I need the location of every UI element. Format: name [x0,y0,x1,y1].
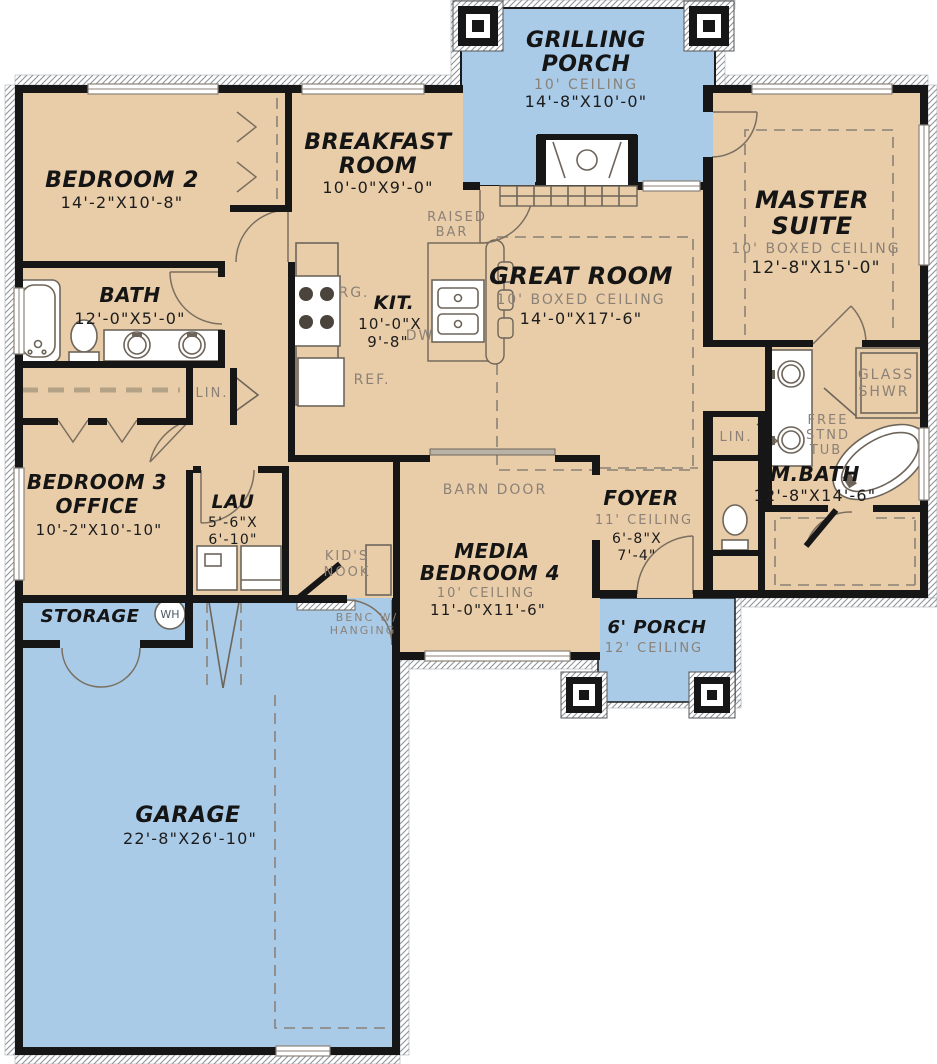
washer [197,546,237,590]
raised-bar-label: RAISED [427,210,487,225]
breakfast-label: ROOM [339,154,417,179]
media-bedroom-ceiling: 10' CEILING [437,586,535,601]
grilling-porch-ceiling: 10' CEILING [534,77,638,93]
garage-dims: 22'-8"X26'-10" [123,829,257,848]
bedroom2-label: BEDROOM 2 [45,168,199,193]
laundry-dims: 6'-10" [208,532,257,548]
window [919,125,929,265]
kitchen-dims: 9'-8" [367,333,409,351]
glass-shower-label: GLASS [858,367,914,383]
hall-linen-label: LIN. [196,386,229,401]
master-bath-dims: 12'-8"X14'-6" [754,486,877,505]
refrigerator [298,358,344,406]
grilling-porch-label: PORCH [542,52,631,77]
column [684,1,734,51]
great-room-label: GREAT ROOM [489,262,673,290]
barn-door-label: BARN DOOR [443,482,547,498]
porch-door [643,181,700,191]
breakfast-dims: 10'-0"X9'-0" [322,178,433,197]
master-bath-label: M.BATH [770,462,860,486]
column [689,672,735,718]
bedroom3-label: OFFICE [55,494,138,518]
dryer [241,546,281,590]
bedroom3-dims: 10'-2"X10'-10" [36,521,163,539]
media-bedroom-label: BEDROOM 4 [420,561,560,585]
dishwasher-label: DW [406,328,435,344]
great-room-dims: 14'-0"X17'-6" [520,309,643,328]
freestanding-tub-label: STND [806,428,850,443]
media-bedroom-dims: 11'-0"X11'-6" [430,601,546,619]
freestanding-tub-label: TUB [809,443,842,458]
kids-nook-label: NOOK [324,565,371,580]
bath-label: BATH [99,283,160,307]
barn-door-slider [430,449,555,455]
bath-dims: 12'-0"X5'-0" [74,309,185,328]
breakfast-label: BREAKFAST [304,130,453,155]
bar-stool [498,318,513,338]
window [425,651,570,661]
glass-shower-label: SHWR [859,384,910,400]
water-heater-label: WH [160,608,179,621]
bench-label: HANGING [330,624,397,637]
raised-bar-label: BAR [436,225,469,240]
bedroom3-label: BEDROOM 3 [27,470,167,494]
kids-nook-label: KID'S [325,549,369,564]
foyer-dims: 6'-8"X [612,531,662,547]
bedroom2-dims: 14'-2"X10'-8" [61,193,184,212]
window [919,428,929,500]
great-room-ceiling: 10' BOXED CEILING [496,292,665,308]
grilling-porch-dims: 14'-8"X10'-0" [525,92,648,111]
refrigerator-label: REF. [354,372,391,388]
media-bedroom-label: MEDIA [454,539,530,563]
laundry-label: LAU [212,491,255,513]
window [302,84,424,94]
column [453,1,503,51]
range-label: RG. [338,285,369,301]
master-toilet [723,505,747,535]
master-linen-label: LIN. [720,430,753,445]
garage-label: GARAGE [135,803,240,828]
laundry-dims: 5'-6"X [208,515,258,531]
window [14,288,24,354]
bench-label: BENC W/ [336,611,399,624]
master-suite-ceiling: 10' BOXED CEILING [731,241,900,257]
front-porch-label: 6' PORCH [608,617,707,638]
kitchen-label: KIT. [374,292,415,314]
grilling-porch-label: GRILLING [526,28,646,53]
window [752,84,892,94]
column [561,672,607,718]
master-suite-label: SUITE [772,212,853,240]
storage-label: STORAGE [41,606,140,627]
window [14,468,24,580]
foyer-ceiling: 11' CEILING [595,513,693,528]
floor-plan-drawing: GRILLING PORCH 10' CEILING 14'-8"X10'-0"… [0,0,937,1064]
freestanding-tub-label: FREE [808,413,849,428]
foyer-label: FOYER [603,486,678,510]
foyer-dims: 7'-4" [617,548,656,564]
master-suite-dims: 12'-8"X15'-0" [751,258,880,278]
floor-plan-page: GRILLING PORCH 10' CEILING 14'-8"X10'-0"… [0,0,937,1064]
front-porch-ceiling: 12' CEILING [605,641,703,656]
window [88,84,218,94]
master-suite-label: MASTER [755,186,869,214]
window [276,1046,330,1056]
